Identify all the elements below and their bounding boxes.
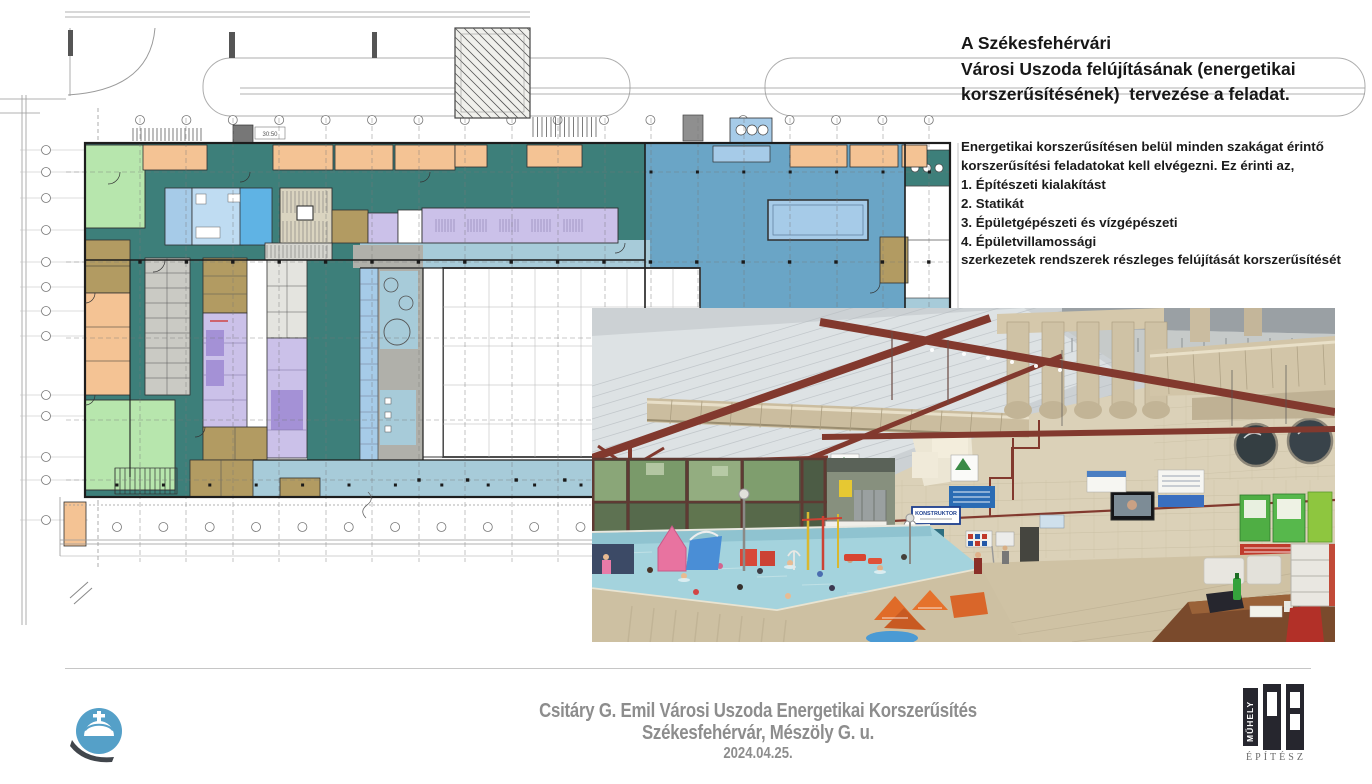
photo-shape [968, 541, 973, 546]
photo-shape [962, 352, 966, 356]
photo-shape [1058, 368, 1062, 372]
photo-shape [603, 554, 609, 560]
plan-shape [70, 582, 88, 598]
plan-shape [423, 268, 443, 457]
architect-logo-epitesz: ÉPÍTÉSZ [1241, 752, 1311, 763]
plan-shape [20, 150, 88, 520]
plan-shape [196, 194, 206, 204]
photo-shape [1003, 546, 1008, 551]
plan-shape [196, 227, 220, 238]
photo-shape [1308, 492, 1332, 542]
plan-shape [68, 30, 73, 56]
plan-lockers [145, 258, 190, 395]
photo-shape [844, 554, 866, 561]
plan-shape [455, 145, 487, 167]
photo-shape: KONSTRUKTOR [915, 511, 957, 517]
plan-shape [136, 116, 934, 125]
photo-shape [1127, 500, 1137, 510]
photo-shape [1010, 360, 1014, 364]
title-line: Városi Uszoda felújításának (energetikai [961, 57, 1361, 83]
body-line: 1. Építészeti kialakítást [961, 176, 1365, 195]
photo-shape [986, 356, 990, 360]
plan-shape [203, 58, 630, 116]
plan-shape [280, 478, 320, 497]
org-logo: SZÉKESFEHÉRVÁRI VÁROSFEJLESZTÉSI KFT. [66, 696, 396, 766]
photo-shape [1112, 322, 1134, 408]
logo-bar: MŰHELY [1243, 688, 1258, 746]
photo-shape [874, 570, 886, 574]
photo-shape [982, 534, 987, 539]
title-line: korszerűsítésének) tervezése a feladat. [961, 82, 1361, 108]
plan-shape [229, 32, 235, 58]
plan-stair-hatch [455, 28, 530, 118]
body-line: 2. Statikát [961, 195, 1365, 214]
photo-shape [827, 458, 895, 472]
photo-shape [760, 551, 775, 566]
plan-shape [747, 125, 757, 135]
photo-shape [737, 584, 743, 590]
plan-shape [68, 28, 155, 95]
photo-shape [1244, 308, 1262, 336]
photo-shape [739, 489, 749, 499]
photo-shape [1034, 364, 1038, 368]
photo-porthole [1288, 419, 1332, 463]
plan-shape [133, 128, 201, 141]
photo-shape [1158, 495, 1204, 507]
photo-slide [686, 536, 722, 570]
plan-shape [206, 360, 224, 386]
photo-shape [912, 452, 938, 478]
photo-shape [1291, 544, 1335, 606]
photo-shape [594, 504, 626, 534]
photo-shape [968, 534, 973, 539]
plan-shape [240, 188, 272, 245]
plan-shape [203, 258, 247, 313]
plan-shape [165, 188, 192, 245]
plan-shape [372, 32, 377, 58]
slide-root: 30:50 KONSTRUKTOR A Székesfehérvári Váro… [0, 0, 1372, 784]
photo-shape [740, 549, 757, 566]
photo-shape [1250, 606, 1282, 617]
photo-shape [1039, 401, 1067, 419]
plan-shape [683, 115, 703, 141]
plan-shape [190, 460, 253, 497]
org-logo-emblem [70, 702, 130, 766]
logo-bar [1263, 684, 1281, 750]
plan-shape [713, 146, 770, 162]
architect-logo: MŰHELY ÉPÍTÉSZ [1243, 684, 1323, 770]
photo-shape [1190, 308, 1210, 342]
photo-shape [1109, 401, 1137, 419]
footer-date: 2024.04.25. [512, 744, 1004, 764]
plan-shape [143, 145, 207, 170]
plan-shape [533, 117, 596, 137]
footer-project-title: Csitáry G. Emil Városi Uszoda Energetika… [512, 700, 1004, 722]
plan-teaching-pool [768, 200, 868, 240]
photo-shape [785, 593, 791, 599]
architect-logo-muhely: MŰHELY [1243, 692, 1258, 750]
footer-address: Székesfehérvár, Mészöly G. u. [512, 722, 1004, 744]
plan-shape [273, 145, 333, 170]
photo-shape [1142, 401, 1170, 419]
photo-shape [1244, 500, 1266, 518]
plan-corridor [422, 208, 618, 243]
plan-shape [385, 412, 391, 418]
photo-shape [950, 592, 988, 618]
plan-shape [398, 210, 422, 243]
plan-shape: 30:50 [262, 132, 278, 138]
photo-shape [602, 560, 611, 574]
photo-shape [829, 585, 835, 591]
photo-shape [975, 552, 981, 558]
photo-shape [974, 558, 982, 574]
plan-shape [74, 588, 92, 604]
plan-room-green [85, 145, 145, 228]
plan-shape [332, 210, 368, 243]
photo-shape [1329, 544, 1335, 606]
photo-shape [1007, 322, 1029, 408]
photo-shape [1247, 556, 1281, 584]
body-line: 3. Épületgépészeti és vízgépészeti [961, 214, 1365, 233]
footer-caption: Csitáry G. Emil Városi Uszoda Energetika… [512, 700, 1004, 764]
plan-shape [85, 240, 130, 293]
photo-shape [930, 348, 934, 352]
plan-shape [736, 125, 746, 135]
plan-shape [307, 240, 360, 477]
plan-shape [85, 293, 130, 395]
plan-shape [64, 502, 86, 546]
photo-shape [592, 544, 634, 574]
plan-shape [206, 330, 224, 356]
photo-shape [1040, 515, 1064, 528]
slide-body-text: Energetikai korszerűsítésen belül minden… [961, 138, 1365, 270]
plan-shape [297, 206, 313, 220]
plan-shape [935, 164, 943, 172]
plan-entrance [233, 125, 253, 143]
photo-shape [975, 534, 980, 539]
photo-shape [693, 589, 699, 595]
plan-shape [395, 145, 455, 170]
photo-shape [901, 554, 907, 560]
title-line: A Székesfehérvári [961, 31, 1361, 57]
body-line: szerkezetek rendszerek részleges felújít… [961, 251, 1365, 270]
photo-bottle [1233, 578, 1241, 600]
photo-shape [646, 463, 664, 475]
plan-shape [850, 145, 898, 167]
photo-shape [1087, 471, 1126, 477]
photo-shape [594, 461, 626, 501]
photo-shape [1074, 401, 1102, 419]
body-line: 4. Épületvillamossági [961, 233, 1365, 252]
plan-shape [758, 125, 768, 135]
photo-shape [868, 558, 882, 564]
plan-shape [385, 426, 391, 432]
photo-shape [647, 567, 653, 573]
photo-shape [996, 532, 1014, 546]
plan-shape [42, 146, 51, 525]
plan-shape [880, 237, 908, 283]
plan-shape [228, 194, 240, 202]
photo-shape [678, 578, 690, 582]
photo-shape [1004, 401, 1032, 419]
plan-shape [353, 245, 423, 268]
logo-bar [1286, 684, 1304, 750]
photo-shape [982, 541, 987, 546]
plan-shape [385, 398, 391, 404]
footer-divider [65, 668, 1311, 669]
photo-shape [817, 571, 823, 577]
body-line: korszerűsítési feladatokat kell elvégezn… [961, 157, 1365, 176]
photo-shape [712, 466, 728, 476]
photo-shape [1002, 551, 1009, 564]
photo-shape [906, 514, 914, 522]
photo-person [1286, 604, 1324, 642]
photo-shape [1235, 573, 1239, 579]
photo-shape [1277, 499, 1301, 519]
photo-shape [744, 461, 799, 501]
plan-shape [527, 145, 582, 167]
photo-shape [839, 480, 852, 497]
photo-shape [757, 568, 763, 574]
pool-photo: KONSTRUKTOR [592, 308, 1335, 642]
plan-shape [380, 271, 418, 349]
plan-shape [790, 145, 847, 167]
slide-title: A Székesfehérvári Városi Uszoda felújítá… [961, 31, 1361, 108]
plan-shape [368, 213, 398, 243]
body-line: Energetikai korszerűsítésen belül minden… [961, 138, 1365, 157]
plan-shape [335, 145, 393, 170]
plan-shape [271, 390, 303, 430]
photo-shape [975, 541, 980, 546]
